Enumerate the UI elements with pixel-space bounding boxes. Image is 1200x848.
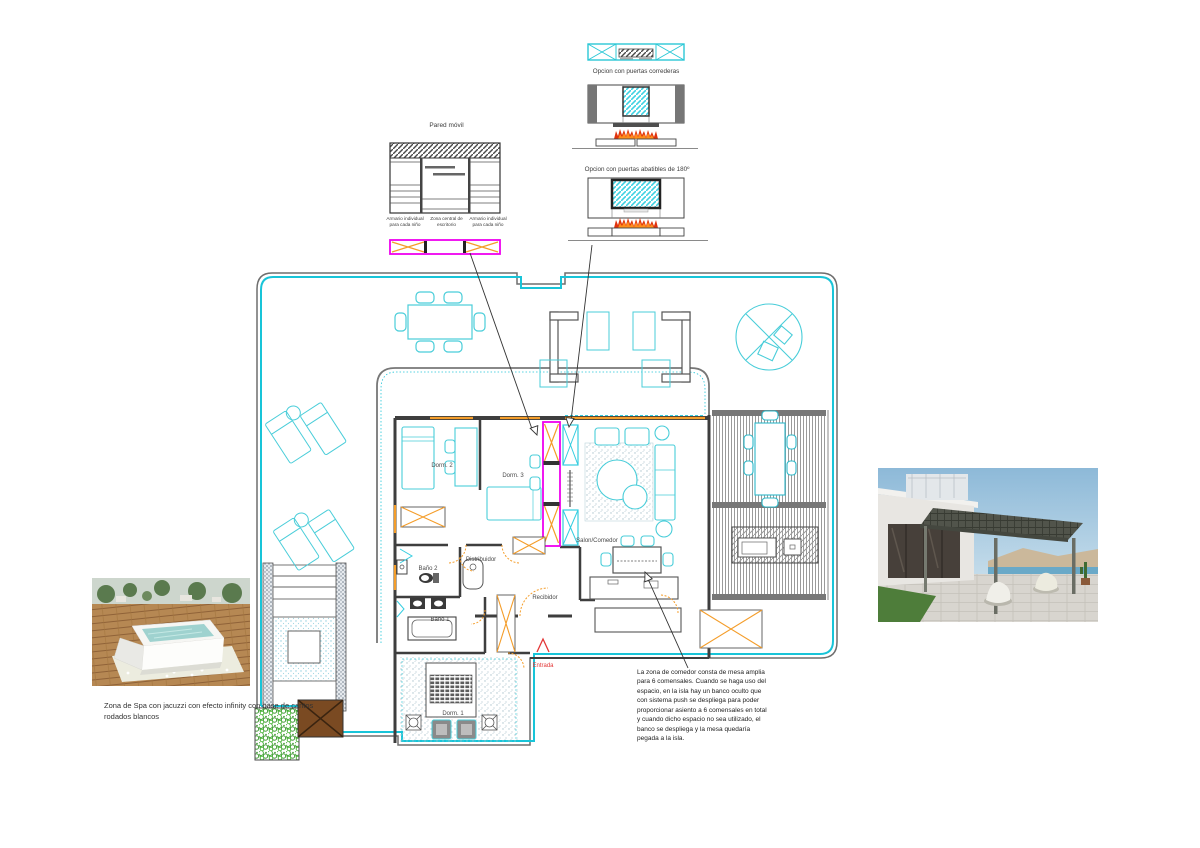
spa-photo (92, 578, 250, 686)
bbq-counter (732, 527, 818, 563)
caption-armario-right: Armario individual para cada niño (468, 216, 508, 228)
fireplace-elevation-sliding (586, 80, 686, 150)
fireplace-plan-strip (586, 42, 686, 62)
movable-wall (543, 422, 560, 546)
label-distribuidor: Distribuidor (466, 557, 496, 563)
spa-zone (263, 563, 346, 711)
bano2-fixtures (397, 549, 483, 589)
dorm1 (400, 657, 518, 743)
salon-furniture (585, 426, 675, 537)
spa-steps (273, 565, 336, 599)
hanging-chair (736, 304, 802, 370)
label-entrada: Entrada (532, 663, 554, 669)
fire-glass (612, 180, 660, 208)
caption-armario-left: Armario individual para cada niño (385, 216, 425, 228)
caption-zona-central: Zona central de escritorio (428, 216, 466, 228)
pared-movil-title: Pared móvil (388, 122, 505, 129)
kitchen (590, 536, 681, 632)
terrace-dining-set (395, 292, 485, 352)
label-bano2: Baño 2 (418, 566, 438, 572)
pared-movil-captions: Armario individual para cada niño Zona c… (385, 216, 508, 228)
island-table (613, 547, 661, 573)
fireplace-option-folding-label: Opcion con puertas abatibles de 180º (578, 166, 696, 173)
house-photo (878, 468, 1098, 622)
jacuzzi (288, 631, 320, 663)
label-bano1: Baño 1 (430, 617, 450, 623)
pared-movil-plan-strip (388, 236, 505, 258)
label-dorm3: Dorm. 3 (502, 473, 524, 479)
fire-glass (623, 87, 649, 116)
dorm2-furniture (402, 427, 477, 489)
flames (614, 129, 658, 139)
outdoor-sofas (540, 312, 690, 387)
pared-movil-elevation (388, 139, 505, 215)
label-dorm1: Dorm. 1 (442, 711, 464, 717)
fireplace-option-sliding-label: Opcion con puertas correderas (584, 68, 688, 75)
entry-arrow (537, 639, 549, 652)
fireplace-elevation-folding (586, 176, 686, 242)
label-recibidor: Recibidor (532, 595, 557, 601)
spa-caption: Zona de Spa con jacuzzi con efecto infin… (104, 700, 322, 723)
label-dorm2: Dorm. 2 (431, 463, 453, 469)
architectural-sheet: Pared móvil Armario individual para cada… (0, 0, 1200, 848)
label-salon: Salon/Comedor (576, 538, 618, 544)
pergola (712, 410, 828, 600)
floor-line (572, 148, 698, 149)
fireplace-unit (563, 425, 578, 545)
floor-line (568, 240, 708, 241)
dorm3-furniture (487, 455, 541, 520)
flames (614, 218, 658, 228)
dining-note: La zona de comedor consta de mesa amplia… (637, 668, 769, 743)
sun-loungers-upper (264, 391, 346, 473)
